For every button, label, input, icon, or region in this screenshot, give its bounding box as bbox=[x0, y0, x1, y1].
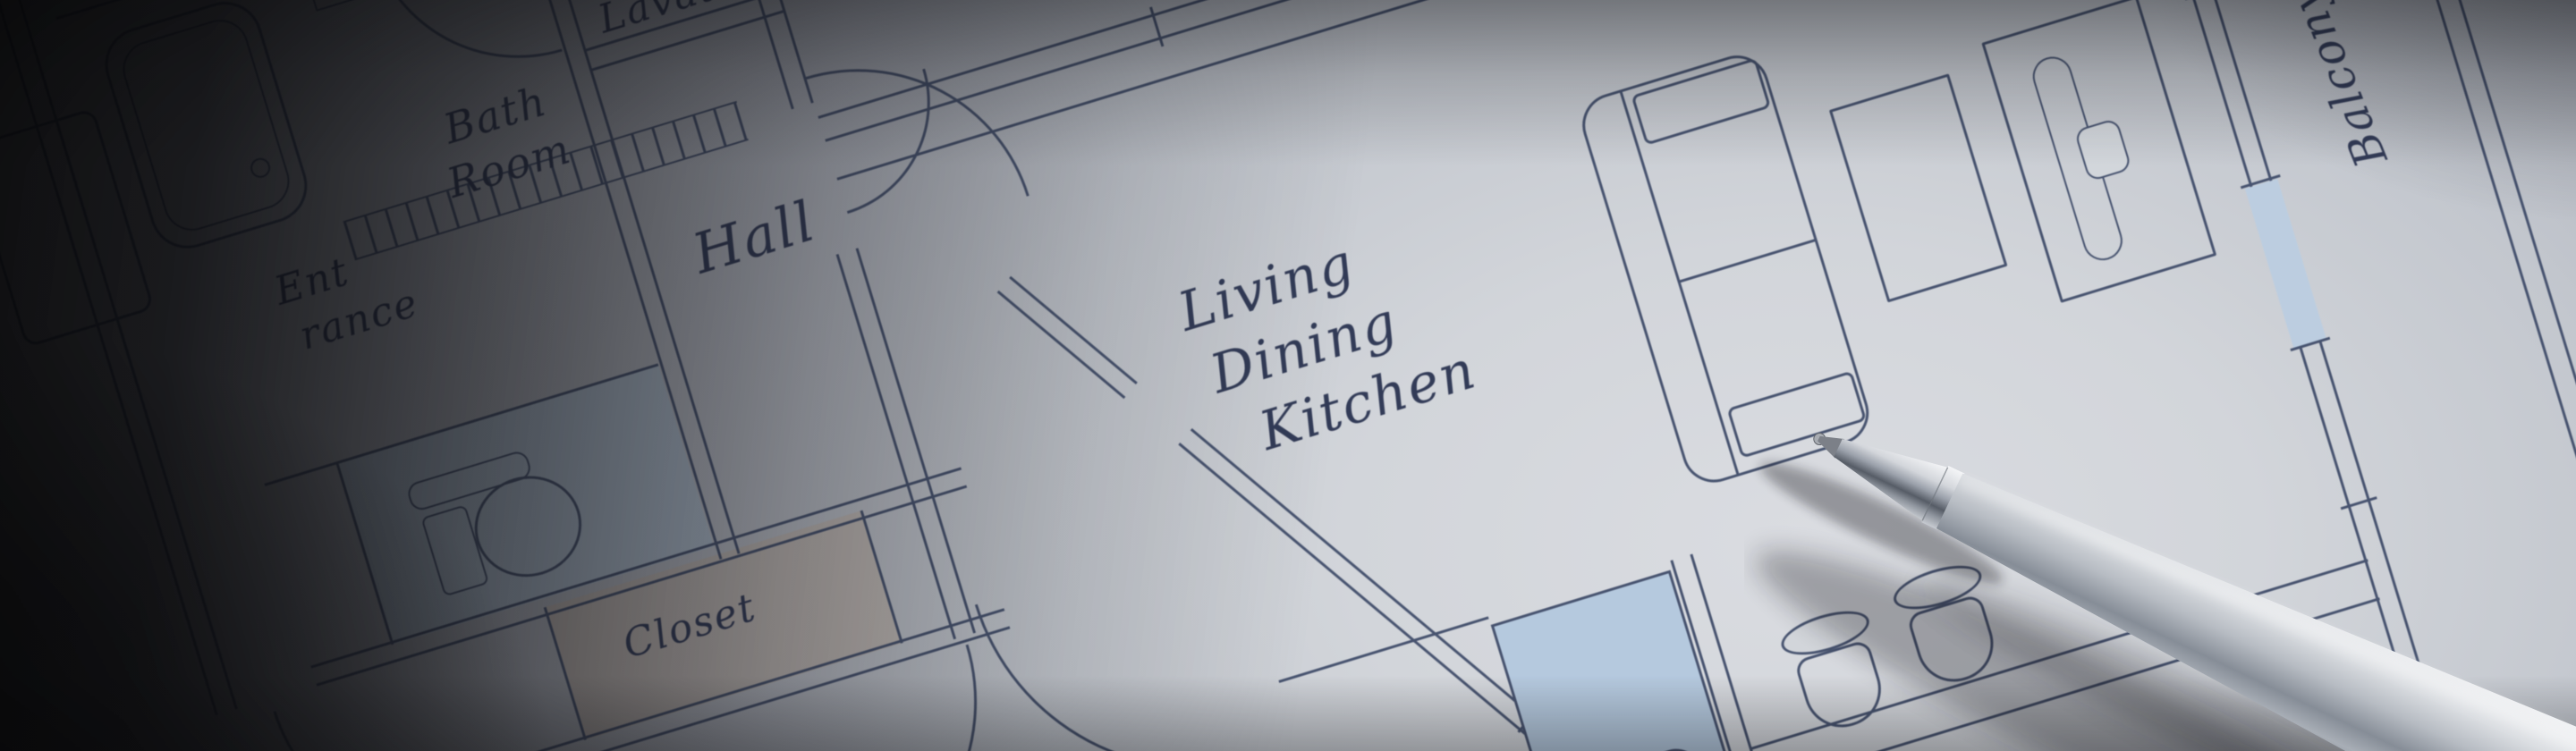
label-hall: Hall bbox=[684, 185, 824, 289]
corridor-door-arc bbox=[975, 537, 1266, 751]
blueprint-photo: Lavatory Bath Room Ent rance Hall Closet… bbox=[0, 0, 2576, 751]
hall-text: Hall bbox=[685, 188, 823, 286]
ldk-corridor-wall-1 bbox=[997, 276, 1138, 399]
ballpoint-pen bbox=[1744, 358, 2576, 751]
balcony-text: Balcony bbox=[2277, 0, 2397, 174]
label-ldk: Living Dining Kitchen bbox=[1171, 204, 1485, 478]
living-table bbox=[1829, 73, 2008, 302]
entry-door-arc bbox=[274, 661, 491, 751]
label-entrance: Ent rance bbox=[269, 231, 426, 366]
label-balcony: Balcony bbox=[2275, 0, 2400, 175]
bathtub-inner bbox=[116, 13, 297, 238]
window-glass bbox=[2245, 179, 2326, 348]
bath-counter bbox=[305, 0, 384, 12]
